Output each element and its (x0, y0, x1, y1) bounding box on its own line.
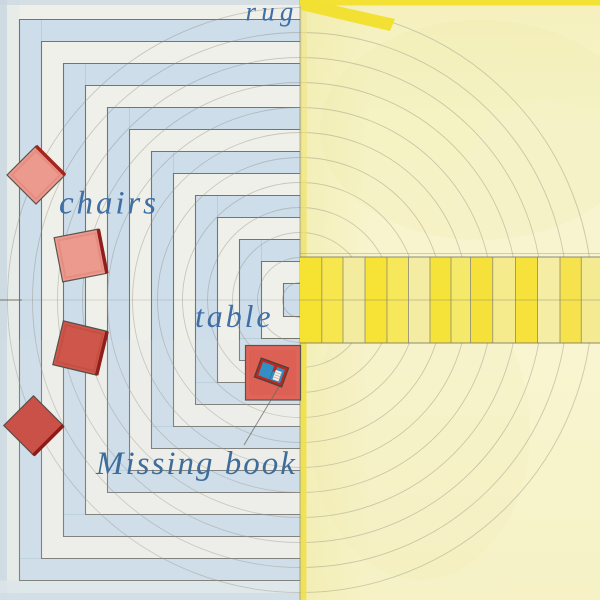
svg-text:Missing book: Missing book (95, 446, 297, 482)
svg-text:rug: rug (246, 0, 299, 27)
svg-text:chairs: chairs (59, 186, 159, 222)
svg-text:table: table (195, 298, 273, 334)
